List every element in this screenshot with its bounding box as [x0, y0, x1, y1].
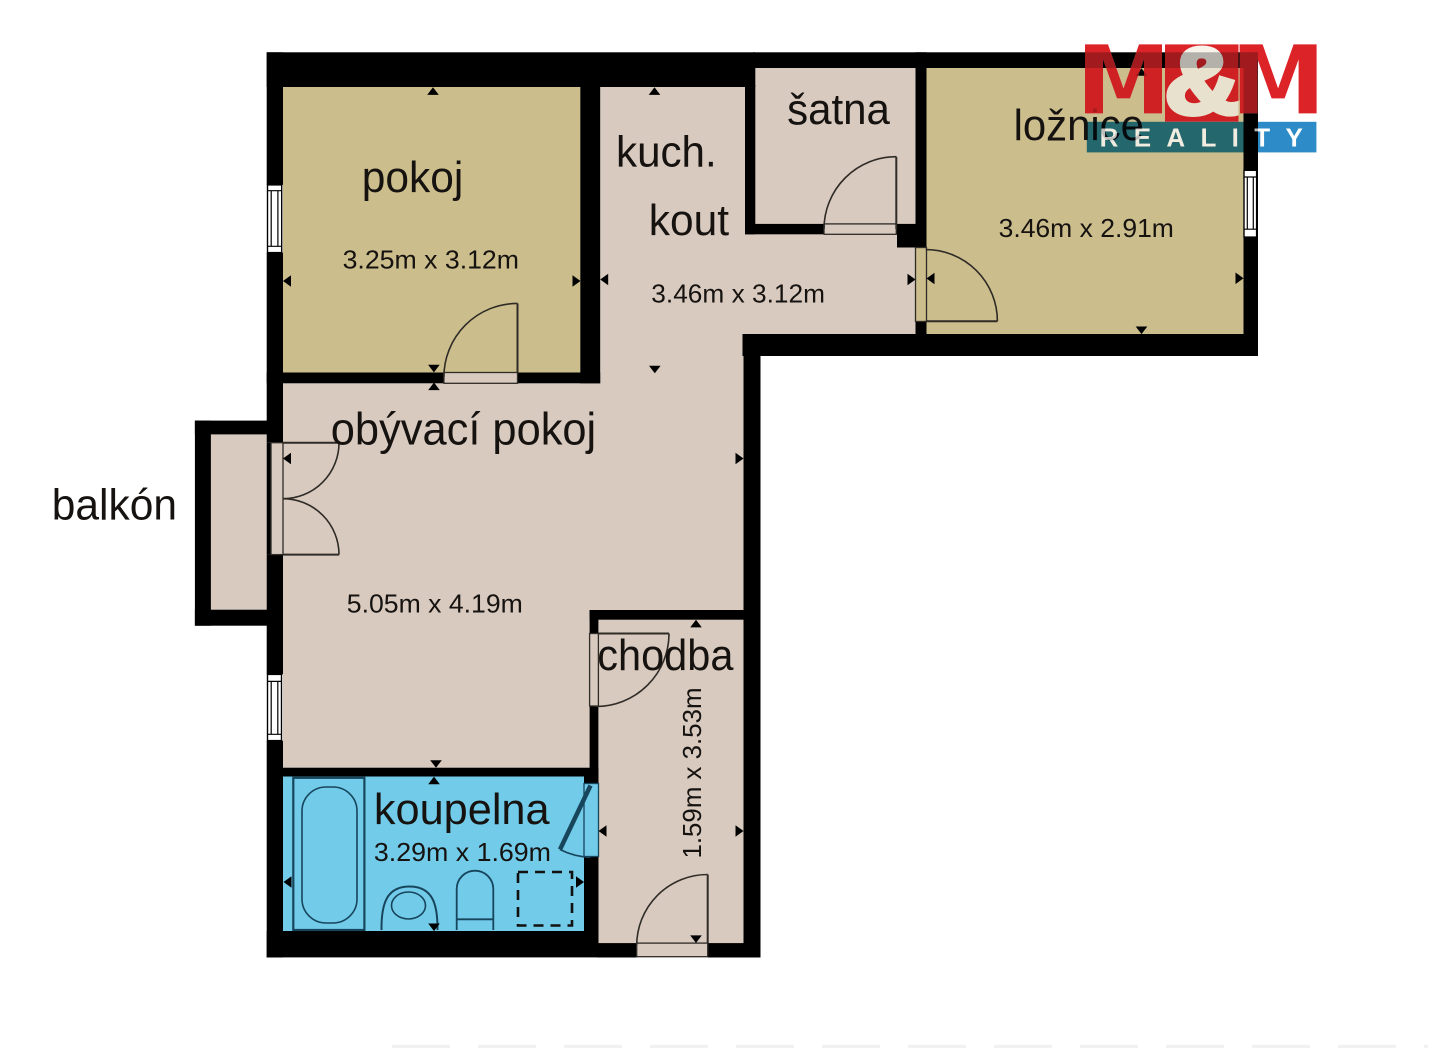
svg-text:&: & — [1165, 28, 1241, 134]
